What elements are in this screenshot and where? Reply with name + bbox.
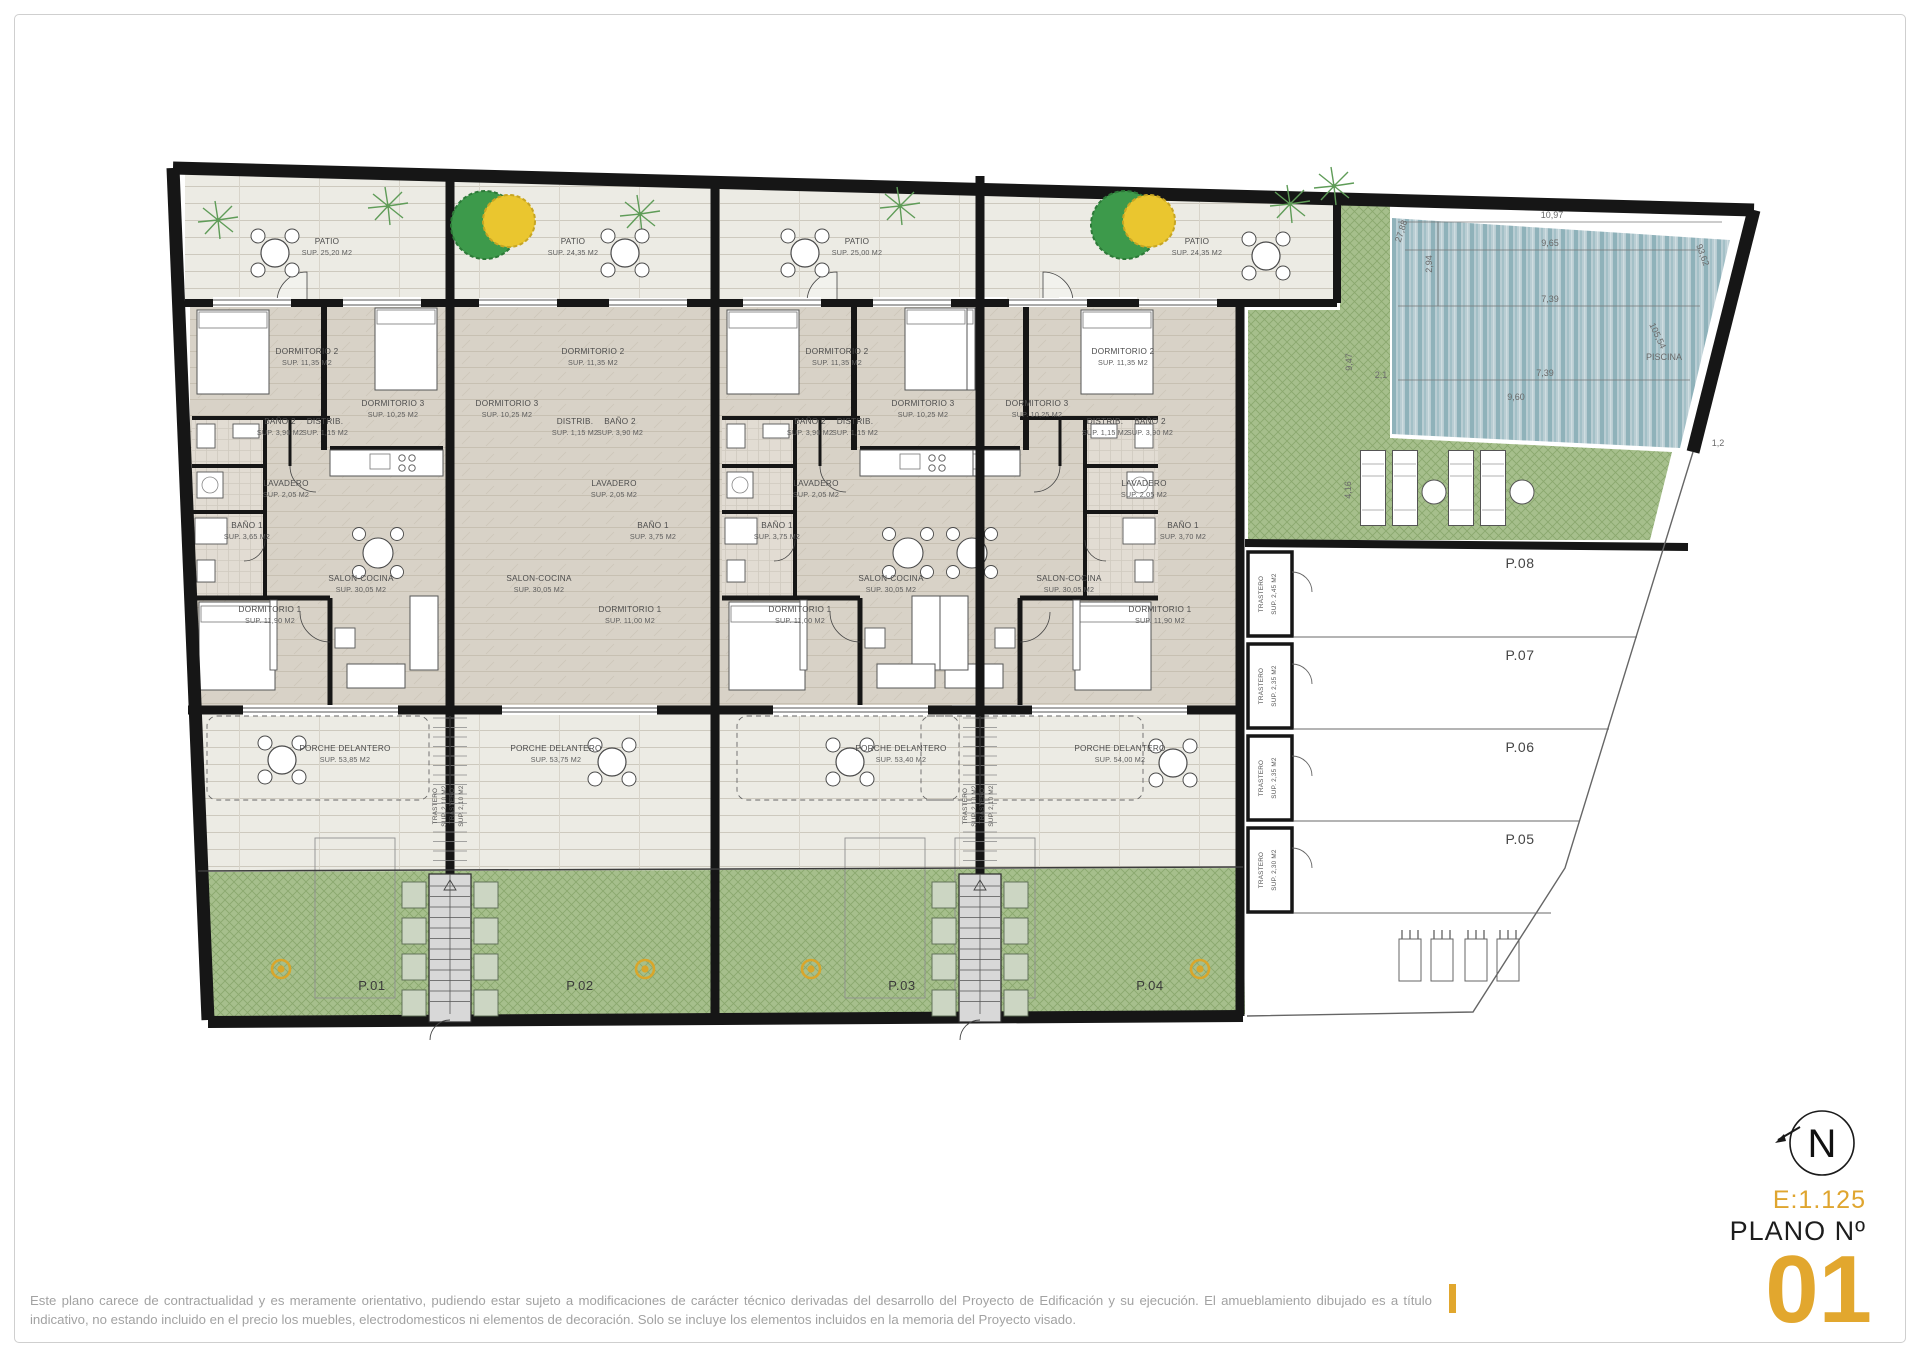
label: P.07 xyxy=(1506,647,1535,663)
label: LAVADERO xyxy=(591,479,636,488)
label: DORMITORIO 2 xyxy=(562,347,625,356)
label: DISTRIB. xyxy=(307,417,344,426)
label: TRASTERO xyxy=(1258,852,1265,888)
label: SUP. 53,40 M2 xyxy=(876,755,926,764)
label: TRASTERO xyxy=(962,788,969,824)
label: 9,60 xyxy=(1507,392,1525,402)
label: PATIO xyxy=(561,237,586,246)
label: P.01 xyxy=(358,978,385,993)
label: SUP. 3,65 M2 xyxy=(224,532,270,541)
label: DISTRIB. xyxy=(557,417,594,426)
label: BAÑO 1 xyxy=(231,520,263,530)
label: SUP. 2,05 M2 xyxy=(591,490,637,499)
disclaimer-line-2: indicativo, no estando incluido en el pr… xyxy=(30,1310,1432,1329)
label: SUP. 1,15 M2 xyxy=(552,428,598,437)
label: PORCHE DELANTERO xyxy=(855,744,946,753)
label: DORMITORIO 1 xyxy=(239,605,302,614)
label: 2,1 xyxy=(1375,370,1388,380)
label: SUP. 3,90 M2 xyxy=(597,428,643,437)
label: SUP. 2,05 M2 xyxy=(1121,490,1167,499)
plan-scale: E:1.125 xyxy=(1773,1186,1866,1214)
label: SUP. 3,75 M2 xyxy=(754,532,800,541)
label: SUP. 24,35 M2 xyxy=(1172,248,1222,257)
label: 10,97 xyxy=(1541,210,1564,220)
label: LAVADERO xyxy=(263,479,308,488)
label: SUP. 2,10 M2 xyxy=(988,785,995,827)
label: 4,16 xyxy=(1343,481,1353,499)
front-garden xyxy=(198,868,1245,1018)
label: DORMITORIO 3 xyxy=(476,399,539,408)
label: SUP. 54,00 M2 xyxy=(1095,755,1145,764)
label: SUP. 30,05 M2 xyxy=(514,585,564,594)
label: PATIO xyxy=(845,237,870,246)
label: SUP. 11,00 M2 xyxy=(775,616,825,625)
label: SUP. 53,85 M2 xyxy=(320,755,370,764)
label: SUP. 2,10 M2 xyxy=(458,785,465,827)
label: BAÑO 2 xyxy=(1134,416,1166,426)
label: P.06 xyxy=(1506,739,1535,755)
label: SUP. 2,30 M2 xyxy=(1271,849,1278,891)
label: LAVADERO xyxy=(1121,479,1166,488)
label: DISTRIB. xyxy=(1087,417,1124,426)
label: SUP. 2,45 M2 xyxy=(1271,573,1278,615)
label: SUP. 3,90 M2 xyxy=(787,428,833,437)
label: P.03 xyxy=(888,978,915,993)
label: TRASTERO xyxy=(1258,760,1265,796)
label: SUP. 2,35 M2 xyxy=(1271,757,1278,799)
label: 2,94 xyxy=(1424,255,1434,273)
plan-number: 01 xyxy=(1765,1236,1872,1343)
label: SUP. 3,70 M2 xyxy=(1160,532,1206,541)
label: PORCHE DELANTERO xyxy=(1074,744,1165,753)
label: SUP. 11,00 M2 xyxy=(605,616,655,625)
label: SUP. 24,35 M2 xyxy=(548,248,598,257)
label: SUP. 11,90 M2 xyxy=(1135,616,1185,625)
label: DORMITORIO 2 xyxy=(1092,347,1155,356)
label: DORMITORIO 3 xyxy=(362,399,425,408)
footer-orange-dash xyxy=(1449,1284,1456,1313)
label: PATIO xyxy=(315,237,340,246)
label: SUP. 30,05 M2 xyxy=(336,585,386,594)
label: SUP. 1,15 M2 xyxy=(302,428,348,437)
label: SALON-COCINA xyxy=(858,574,924,583)
label: DORMITORIO 2 xyxy=(806,347,869,356)
label: P.08 xyxy=(1506,555,1535,571)
label: TRASTERO xyxy=(979,788,986,824)
disclaimer-text: Este plano carece de contractualidad y e… xyxy=(30,1291,1432,1329)
label: SUP. 2,05 M2 xyxy=(793,490,839,499)
label: DORMITORIO 2 xyxy=(276,347,339,356)
label: BAÑO 2 xyxy=(794,416,826,426)
label: TRASTERO xyxy=(1258,668,1265,704)
label: SUP. 2,10 M2 xyxy=(971,785,978,827)
label: TRASTERO xyxy=(449,788,456,824)
label: SUP. 11,35 M2 xyxy=(568,358,618,367)
label: SUP. 11,35 M2 xyxy=(1098,358,1148,367)
label: SUP. 30,05 M2 xyxy=(866,585,916,594)
label: SUP. 3,90 M2 xyxy=(257,428,303,437)
label: DISTRIB. xyxy=(837,417,874,426)
label: P.04 xyxy=(1136,978,1163,993)
label: SALON-COCINA xyxy=(1036,574,1102,583)
label: SUP. 2,05 M2 xyxy=(263,490,309,499)
label: SUP. 11,90 M2 xyxy=(245,616,295,625)
label: SUP. 2,10 M2 xyxy=(441,785,448,827)
label: SUP. 1,15 M2 xyxy=(832,428,878,437)
label: DORMITORIO 1 xyxy=(769,605,832,614)
label: BAÑO 2 xyxy=(604,416,636,426)
label: PORCHE DELANTERO xyxy=(299,744,390,753)
label: TRASTERO xyxy=(432,788,439,824)
label: BAÑO 1 xyxy=(1167,520,1199,530)
label: 9,65 xyxy=(1541,238,1559,248)
label: DORMITORIO 3 xyxy=(1006,399,1069,408)
label: SUP. 25,20 M2 xyxy=(302,248,352,257)
label: PISCINA xyxy=(1646,352,1682,362)
label: P.05 xyxy=(1506,831,1535,847)
label: TRASTERO xyxy=(1258,576,1265,612)
label: SUP. 3,75 M2 xyxy=(630,532,676,541)
label: SUP. 25,00 M2 xyxy=(832,248,882,257)
label: BAÑO 1 xyxy=(761,520,793,530)
label: SUP. 2,35 M2 xyxy=(1271,665,1278,707)
floor-plan-drawing: TRASTEROSUP. 2,10 M2TRASTEROSUP. 2,10 M2… xyxy=(0,0,1920,1357)
label: DORMITORIO 1 xyxy=(599,605,662,614)
label: DORMITORIO 1 xyxy=(1129,605,1192,614)
label: SUP. 11,35 M2 xyxy=(282,358,332,367)
label: BAÑO 2 xyxy=(264,416,296,426)
label: SUP. 11,35 M2 xyxy=(812,358,862,367)
label: SUP. 10,25 M2 xyxy=(1012,410,1062,419)
label: BAÑO 1 xyxy=(637,520,669,530)
label: 9,47 xyxy=(1344,353,1354,371)
label: 7,39 xyxy=(1536,368,1554,378)
label: 1,2 xyxy=(1712,438,1725,448)
label: 7,39 xyxy=(1541,294,1559,304)
label: LAVADERO xyxy=(793,479,838,488)
label: SUP. 10,25 M2 xyxy=(368,410,418,419)
label: SUP. 30,05 M2 xyxy=(1044,585,1094,594)
label: SUP. 10,25 M2 xyxy=(482,410,532,419)
label: PORCHE DELANTERO xyxy=(510,744,601,753)
label: SALON-COCINA xyxy=(506,574,572,583)
label: SALON-COCINA xyxy=(328,574,394,583)
disclaimer-line-1: Este plano carece de contractualidad y e… xyxy=(30,1291,1432,1310)
label: P.02 xyxy=(566,978,593,993)
pool xyxy=(1392,218,1730,448)
label: SUP. 3,90 M2 xyxy=(1127,428,1173,437)
north-letter: N xyxy=(1808,1122,1837,1166)
label: DORMITORIO 3 xyxy=(892,399,955,408)
label: PATIO xyxy=(1185,237,1210,246)
label: SUP. 10,25 M2 xyxy=(898,410,948,419)
page: TRASTEROSUP. 2,10 M2TRASTEROSUP. 2,10 M2… xyxy=(0,0,1920,1357)
label: SUP. 53,75 M2 xyxy=(531,755,581,764)
label: SUP. 1,15 M2 xyxy=(1082,428,1128,437)
